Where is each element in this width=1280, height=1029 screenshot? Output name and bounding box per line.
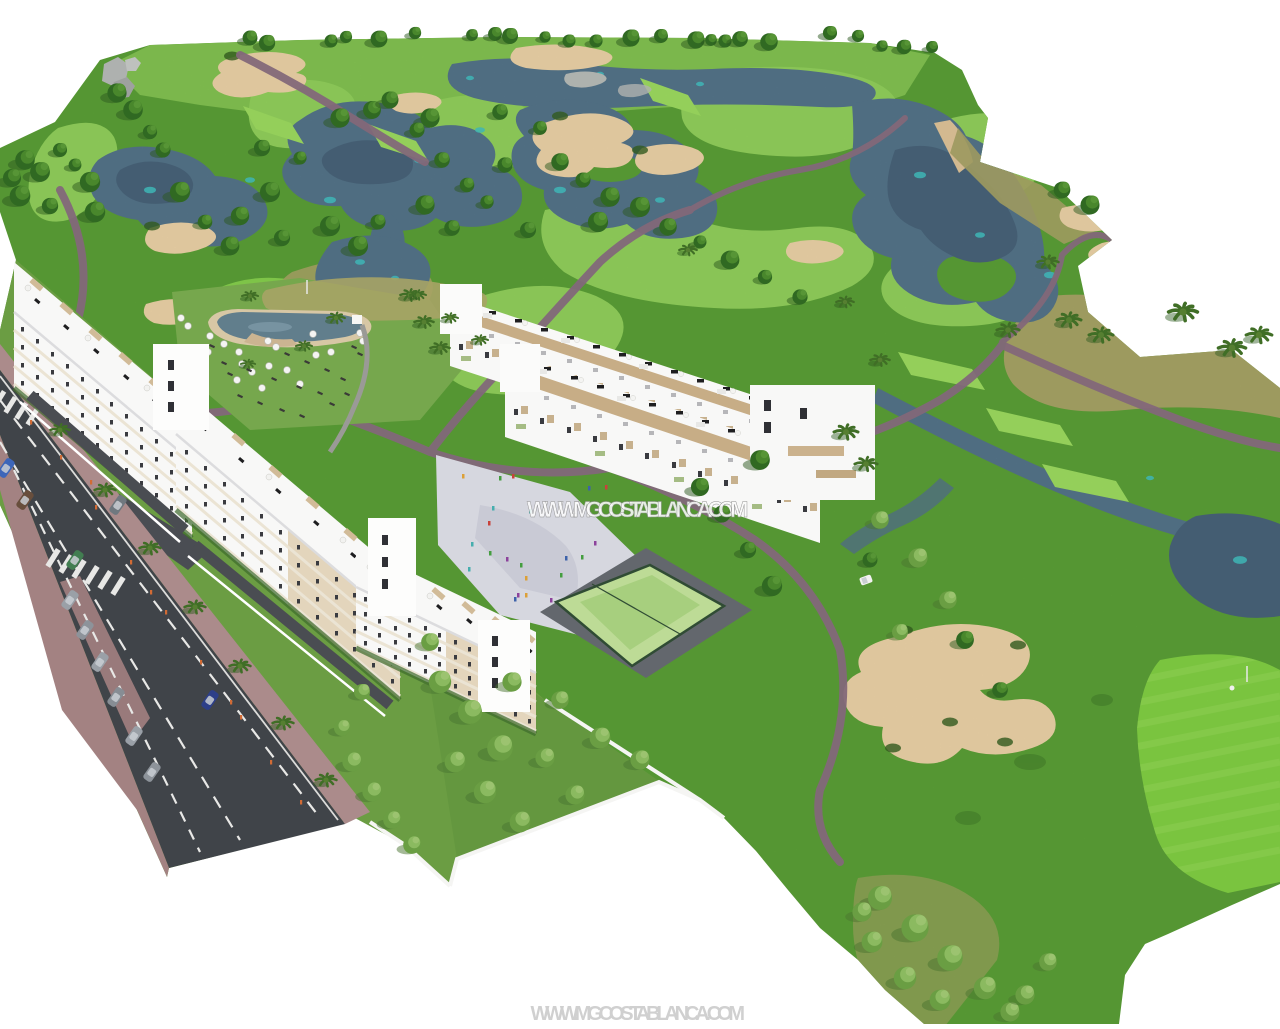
svg-text:WWW.MGCOSTABLANCA.COM: WWW.MGCOSTABLANCA.COM bbox=[531, 1003, 746, 1024]
svg-text:WWW.MGCOSTABLANCA.COM: WWW.MGCOSTABLANCA.COM bbox=[527, 497, 749, 522]
